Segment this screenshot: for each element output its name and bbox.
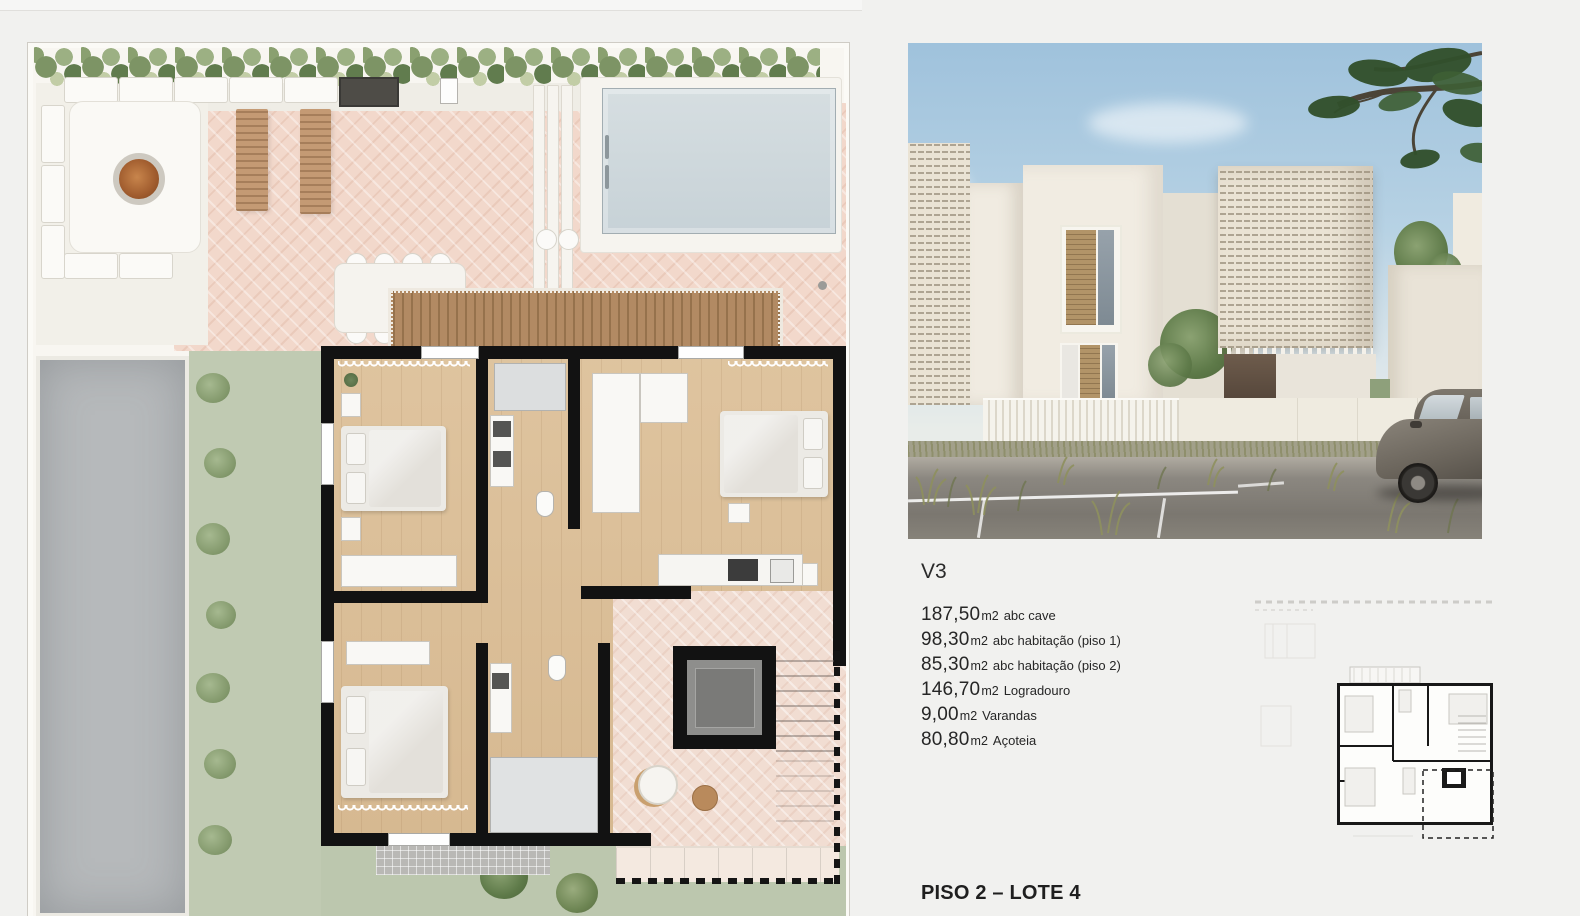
- sliding-door: [421, 346, 479, 359]
- shower: [494, 363, 566, 411]
- cooktop: [728, 559, 758, 581]
- area-unit: m2: [971, 734, 988, 748]
- presentation-page: V3 187,50m2abc cave 98,30m2abc habitação…: [0, 0, 1580, 916]
- shrub: [206, 601, 236, 629]
- area-unit: m2: [971, 659, 988, 673]
- area-label: Varandas: [982, 708, 1037, 723]
- curtain: [338, 361, 470, 368]
- stairs-lower: [776, 760, 834, 832]
- window-glass: [1102, 345, 1115, 399]
- window: [321, 423, 334, 485]
- pool-ladder: [605, 135, 609, 159]
- window-glass: [1098, 230, 1114, 325]
- bench-cushion: [64, 77, 118, 103]
- railing: [616, 878, 839, 884]
- car: [1376, 381, 1482, 516]
- curtain: [728, 361, 828, 368]
- area-unit: m2: [960, 709, 977, 723]
- shrub: [196, 373, 230, 403]
- kitchen-sink: [770, 559, 794, 583]
- plant-pot: [344, 373, 358, 387]
- garden-tree: [556, 873, 598, 913]
- area-row: 187,50m2abc cave: [921, 604, 1121, 629]
- driveway: [36, 356, 189, 916]
- area-value: 187,50: [921, 604, 980, 626]
- doormat: [339, 77, 399, 107]
- top-divider-line: [0, 10, 862, 11]
- unit-label: V3: [921, 560, 947, 584]
- dresser: [346, 641, 430, 665]
- window: [388, 833, 450, 846]
- area-value: 98,30: [921, 629, 970, 651]
- wall: [321, 833, 651, 846]
- pool-ladder: [605, 165, 609, 189]
- pool: [602, 88, 836, 234]
- sun-lounger: [300, 109, 331, 214]
- mini-floorplan: [1253, 596, 1503, 852]
- window-upper: [1060, 225, 1122, 334]
- bench-cushion: [119, 77, 173, 103]
- window-wood-slats: [1080, 345, 1100, 399]
- bench-cushion: [284, 77, 338, 103]
- bench-cushion: [229, 77, 283, 103]
- area-unit: m2: [981, 684, 998, 698]
- area-row: 85,30m2abc habitação (piso 2): [921, 654, 1121, 679]
- area-value: 80,80: [921, 729, 970, 751]
- area-label: Logradouro: [1004, 683, 1071, 698]
- gravel-grid: [376, 841, 550, 875]
- wall: [833, 346, 846, 666]
- wardrobe: [592, 373, 640, 513]
- terrace-chair: [638, 765, 678, 805]
- fire-pit: [113, 153, 165, 205]
- pool-steps: [533, 85, 545, 311]
- outdoor-fixture: [440, 78, 458, 104]
- car-mirror: [1410, 421, 1422, 428]
- shower: [490, 757, 598, 833]
- side-table: [728, 503, 750, 523]
- bench-cushion: [64, 253, 118, 279]
- wall: [476, 359, 488, 599]
- render-photo: [908, 43, 1482, 539]
- window-lower: [1060, 343, 1118, 401]
- top-strip: [0, 0, 862, 10]
- tree-branch: [1138, 43, 1482, 213]
- bed: [341, 686, 448, 798]
- building-left-face: [970, 183, 1023, 405]
- sliding-door: [678, 346, 744, 359]
- window-curtain: [1062, 345, 1078, 399]
- sink: [492, 673, 509, 689]
- nightstand: [341, 393, 361, 417]
- bench-cushion: [174, 77, 228, 103]
- pool-steps: [547, 85, 559, 307]
- garden-faucet: [818, 281, 827, 290]
- area-label: abc habitação (piso 2): [993, 658, 1121, 673]
- sun-lounger: [236, 109, 268, 211]
- perforated-facade-left: [908, 143, 970, 405]
- bench-cushion: [41, 165, 65, 223]
- front-tree: [1148, 343, 1192, 387]
- area-value: 146,70: [921, 679, 980, 701]
- wall: [321, 591, 488, 603]
- car-wheel: [1398, 463, 1438, 503]
- bed: [341, 426, 446, 511]
- area-value: 9,00: [921, 704, 959, 726]
- toilet: [548, 655, 566, 681]
- floor-title: PISO 2 – LOTE 4: [921, 882, 1081, 905]
- sink: [493, 421, 511, 437]
- shrub: [204, 448, 236, 478]
- wall: [321, 346, 846, 359]
- area-unit: m2: [981, 609, 998, 623]
- toilet: [536, 491, 554, 517]
- bench-cushion: [41, 225, 65, 279]
- balcony: [616, 846, 839, 882]
- area-value: 85,30: [921, 654, 970, 676]
- area-list: 187,50m2abc cave 98,30m2abc habitação (p…: [921, 604, 1121, 754]
- pool-steps: [561, 85, 573, 303]
- area-label: abc cave: [1004, 608, 1056, 623]
- wardrobe: [640, 373, 688, 423]
- shrub: [196, 673, 230, 703]
- sink: [493, 451, 511, 467]
- area-row: 146,70m2Logradouro: [921, 679, 1121, 704]
- shrub: [196, 523, 230, 555]
- stool: [536, 229, 557, 250]
- window-wood-slats: [1066, 230, 1096, 325]
- area-row: 98,30m2abc habitação (piso 1): [921, 629, 1121, 654]
- area-row: 9,00m2Varandas: [921, 704, 1121, 729]
- site-plan: [27, 42, 850, 916]
- nightstand: [341, 517, 361, 541]
- curtain: [338, 805, 468, 812]
- dresser: [341, 555, 457, 587]
- wall: [598, 643, 610, 833]
- elevator-cab-inner: [695, 668, 755, 728]
- wall: [476, 643, 488, 833]
- stairs: [776, 660, 834, 760]
- bench-cushion: [41, 105, 65, 163]
- area-row: 80,80m2Açoteia: [921, 729, 1121, 754]
- wall: [568, 359, 580, 529]
- window: [321, 641, 334, 703]
- area-label: abc habitação (piso 1): [993, 633, 1121, 648]
- bed: [720, 411, 828, 497]
- terrace-side-table: [692, 785, 718, 811]
- shrub: [204, 749, 236, 779]
- bench-cushion: [119, 253, 173, 279]
- shrub: [198, 825, 232, 855]
- area-unit: m2: [971, 634, 988, 648]
- stool: [558, 229, 579, 250]
- wall: [581, 586, 691, 599]
- area-label: Açoteia: [993, 733, 1036, 748]
- railing: [834, 651, 840, 884]
